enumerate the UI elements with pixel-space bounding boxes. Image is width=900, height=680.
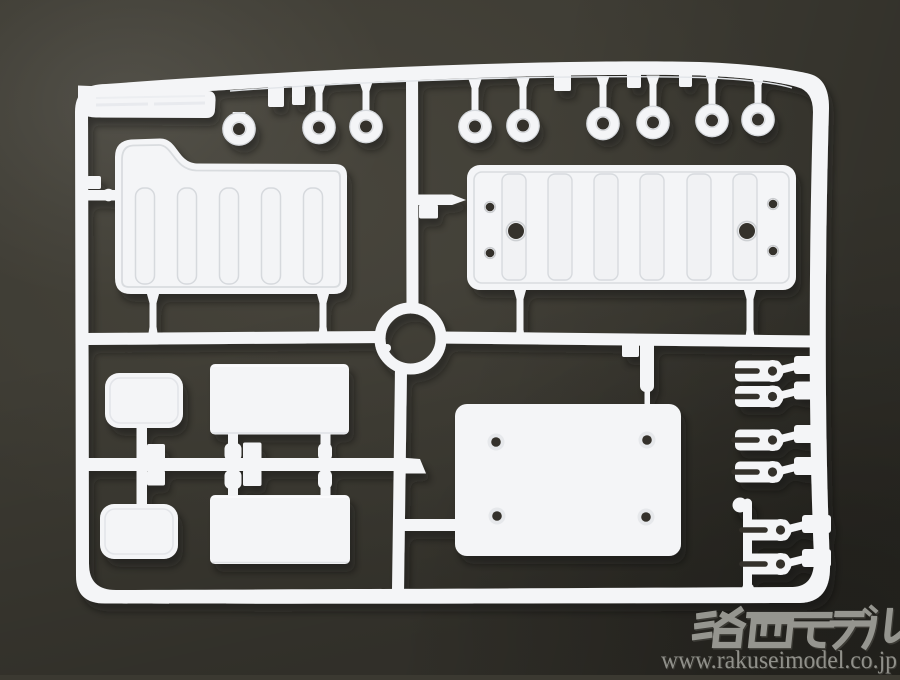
svg-text:www.rakuseimodel.co.jp: www.rakuseimodel.co.jp <box>661 645 897 674</box>
